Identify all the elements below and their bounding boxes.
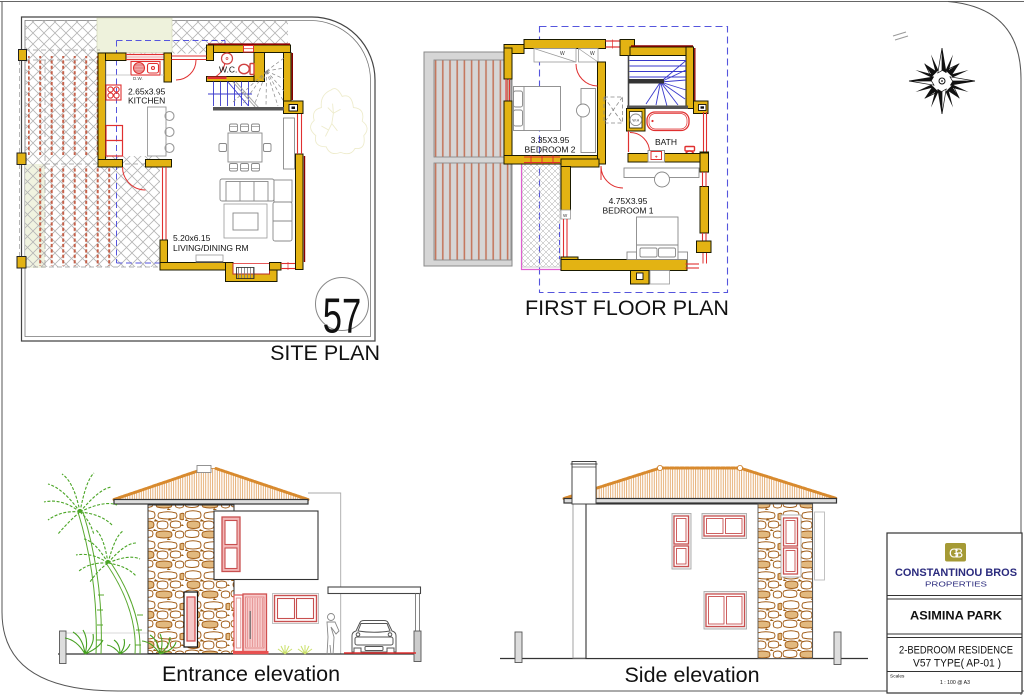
svg-text:BATH: BATH	[655, 137, 677, 147]
svg-text:W: W	[590, 51, 595, 57]
svg-text:BEDROOM 2: BEDROOM 2	[524, 145, 575, 155]
svg-text:KITCHEN: KITCHEN	[128, 96, 165, 106]
svg-text:3.35X3.95: 3.35X3.95	[531, 135, 570, 145]
svg-text:CONSTANTINOU BROS: CONSTANTINOU BROS	[895, 567, 1017, 579]
svg-text:Scales: Scales	[890, 674, 905, 680]
svg-text:V57 TYPE( AP-01 ): V57 TYPE( AP-01 )	[913, 658, 1001, 670]
svg-text:SITE PLAN: SITE PLAN	[270, 341, 380, 365]
svg-text:5.20x6.15: 5.20x6.15	[173, 233, 211, 243]
svg-text:D.W.: D.W.	[133, 76, 143, 81]
svg-text:ASIMINA PARK: ASIMINA PARK	[910, 609, 1002, 623]
svg-text:2-BEDROOM RESIDENCE: 2-BEDROOM RESIDENCE	[899, 645, 1013, 657]
svg-text:4.75X3.95: 4.75X3.95	[609, 196, 648, 206]
svg-text:BEDROOM 1: BEDROOM 1	[602, 206, 653, 216]
svg-text:LIVING/DINING RM: LIVING/DINING RM	[173, 243, 249, 253]
svg-text:W.C.: W.C.	[219, 65, 237, 75]
svg-text:Side elevation: Side elevation	[624, 663, 759, 687]
svg-text:B: B	[955, 546, 964, 561]
svg-text:W: W	[560, 51, 565, 57]
svg-text:57: 57	[323, 289, 361, 343]
svg-text:Entrance elevation: Entrance elevation	[162, 662, 340, 686]
svg-text:1 : 100 @ A3: 1 : 100 @ A3	[940, 680, 970, 686]
svg-text:W.H: W.H	[632, 119, 639, 123]
svg-text:FIRST FLOOR PLAN: FIRST FLOOR PLAN	[525, 296, 729, 320]
svg-text:PROPERTIES: PROPERTIES	[925, 582, 987, 589]
